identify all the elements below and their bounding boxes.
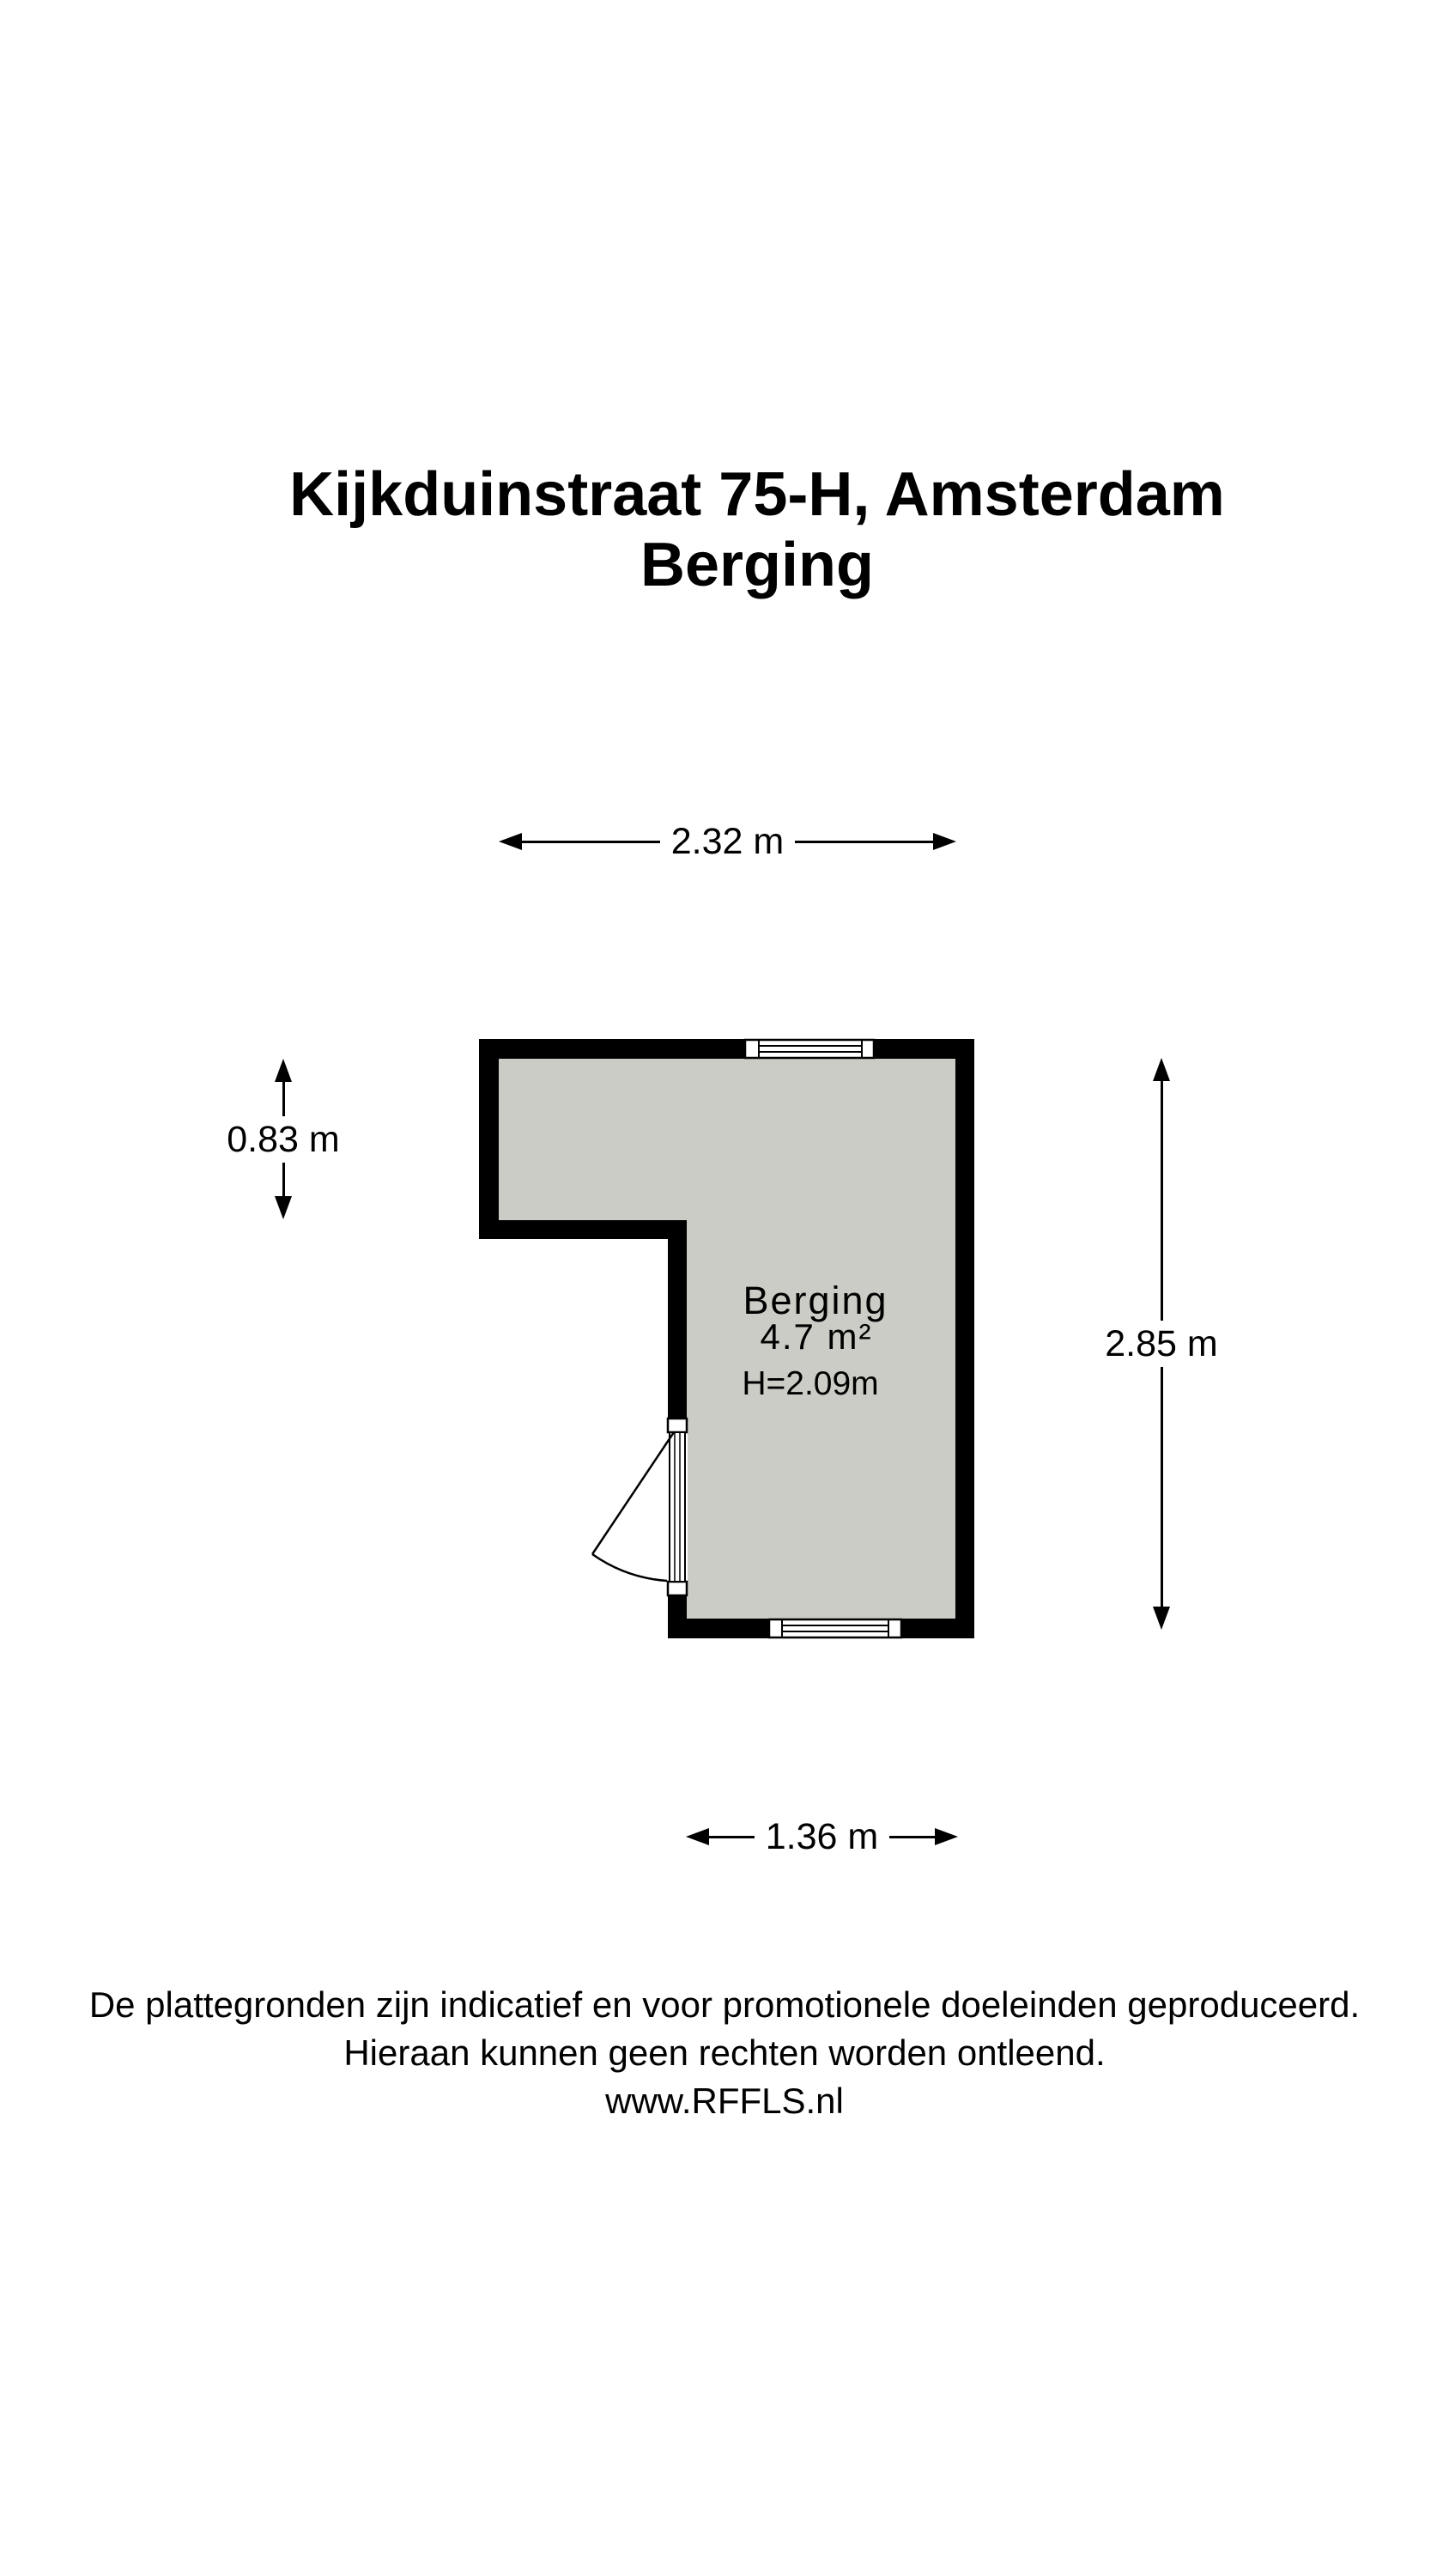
door-leaf-line bbox=[592, 1432, 674, 1554]
dimension-line bbox=[1161, 1081, 1163, 1321]
arrowhead-down-icon bbox=[1153, 1607, 1170, 1630]
dimension-line bbox=[282, 1082, 285, 1116]
dimension-line bbox=[522, 841, 660, 843]
room-area-label: 4.7 m² bbox=[666, 1316, 967, 1358]
page-title-address: Kijkduinstraat 75-H, Amsterdam bbox=[33, 459, 1449, 530]
room-ceiling-height-label: H=2.09m bbox=[660, 1365, 961, 1403]
window-top bbox=[745, 1040, 874, 1058]
footer-disclaimer: De plattegronden zijn indicatief en voor… bbox=[0, 1981, 1449, 2125]
footer-website: www.RFFLS.nl bbox=[0, 2077, 1449, 2125]
dimension-right: 2.85 m bbox=[1084, 1058, 1239, 1630]
dimension-bottom: 1.36 m bbox=[686, 1818, 958, 1856]
dimension-top: 2.32 m bbox=[499, 823, 956, 860]
dimension-top-label: 2.32 m bbox=[671, 818, 784, 865]
page-title: Kijkduinstraat 75-H, Amsterdam Berging bbox=[33, 459, 1449, 600]
dimension-line bbox=[795, 841, 933, 843]
footer-disclaimer-line1: De plattegronden zijn indicatief en voor… bbox=[0, 1981, 1449, 2029]
door-frame bbox=[670, 1432, 685, 1582]
arrowhead-right-icon bbox=[935, 1828, 958, 1845]
arrowhead-up-icon bbox=[275, 1059, 292, 1082]
dimension-right-label: 2.85 m bbox=[1105, 1321, 1217, 1367]
door-jamb-bottom bbox=[668, 1582, 687, 1595]
dimension-line bbox=[1161, 1367, 1163, 1607]
arrowhead-right-icon bbox=[933, 833, 956, 850]
footer-disclaimer-line2: Hieraan kunnen geen rechten worden ontle… bbox=[0, 2029, 1449, 2077]
dimension-left: 0.83 m bbox=[215, 1059, 352, 1219]
dimension-line bbox=[709, 1836, 755, 1838]
arrowhead-down-icon bbox=[275, 1196, 292, 1219]
dimension-line bbox=[889, 1836, 935, 1838]
door-jamb-top bbox=[668, 1419, 687, 1432]
arrowhead-left-icon bbox=[686, 1828, 709, 1845]
dimension-bottom-label: 1.36 m bbox=[766, 1814, 878, 1860]
door bbox=[592, 1419, 688, 1595]
arrowhead-up-icon bbox=[1153, 1058, 1170, 1081]
dimension-left-label: 0.83 m bbox=[227, 1116, 339, 1163]
arrowhead-left-icon bbox=[499, 833, 522, 850]
dimension-line bbox=[282, 1163, 285, 1197]
door-swing-arc bbox=[592, 1554, 667, 1581]
page-title-room: Berging bbox=[33, 530, 1449, 600]
window-bottom bbox=[769, 1619, 901, 1637]
